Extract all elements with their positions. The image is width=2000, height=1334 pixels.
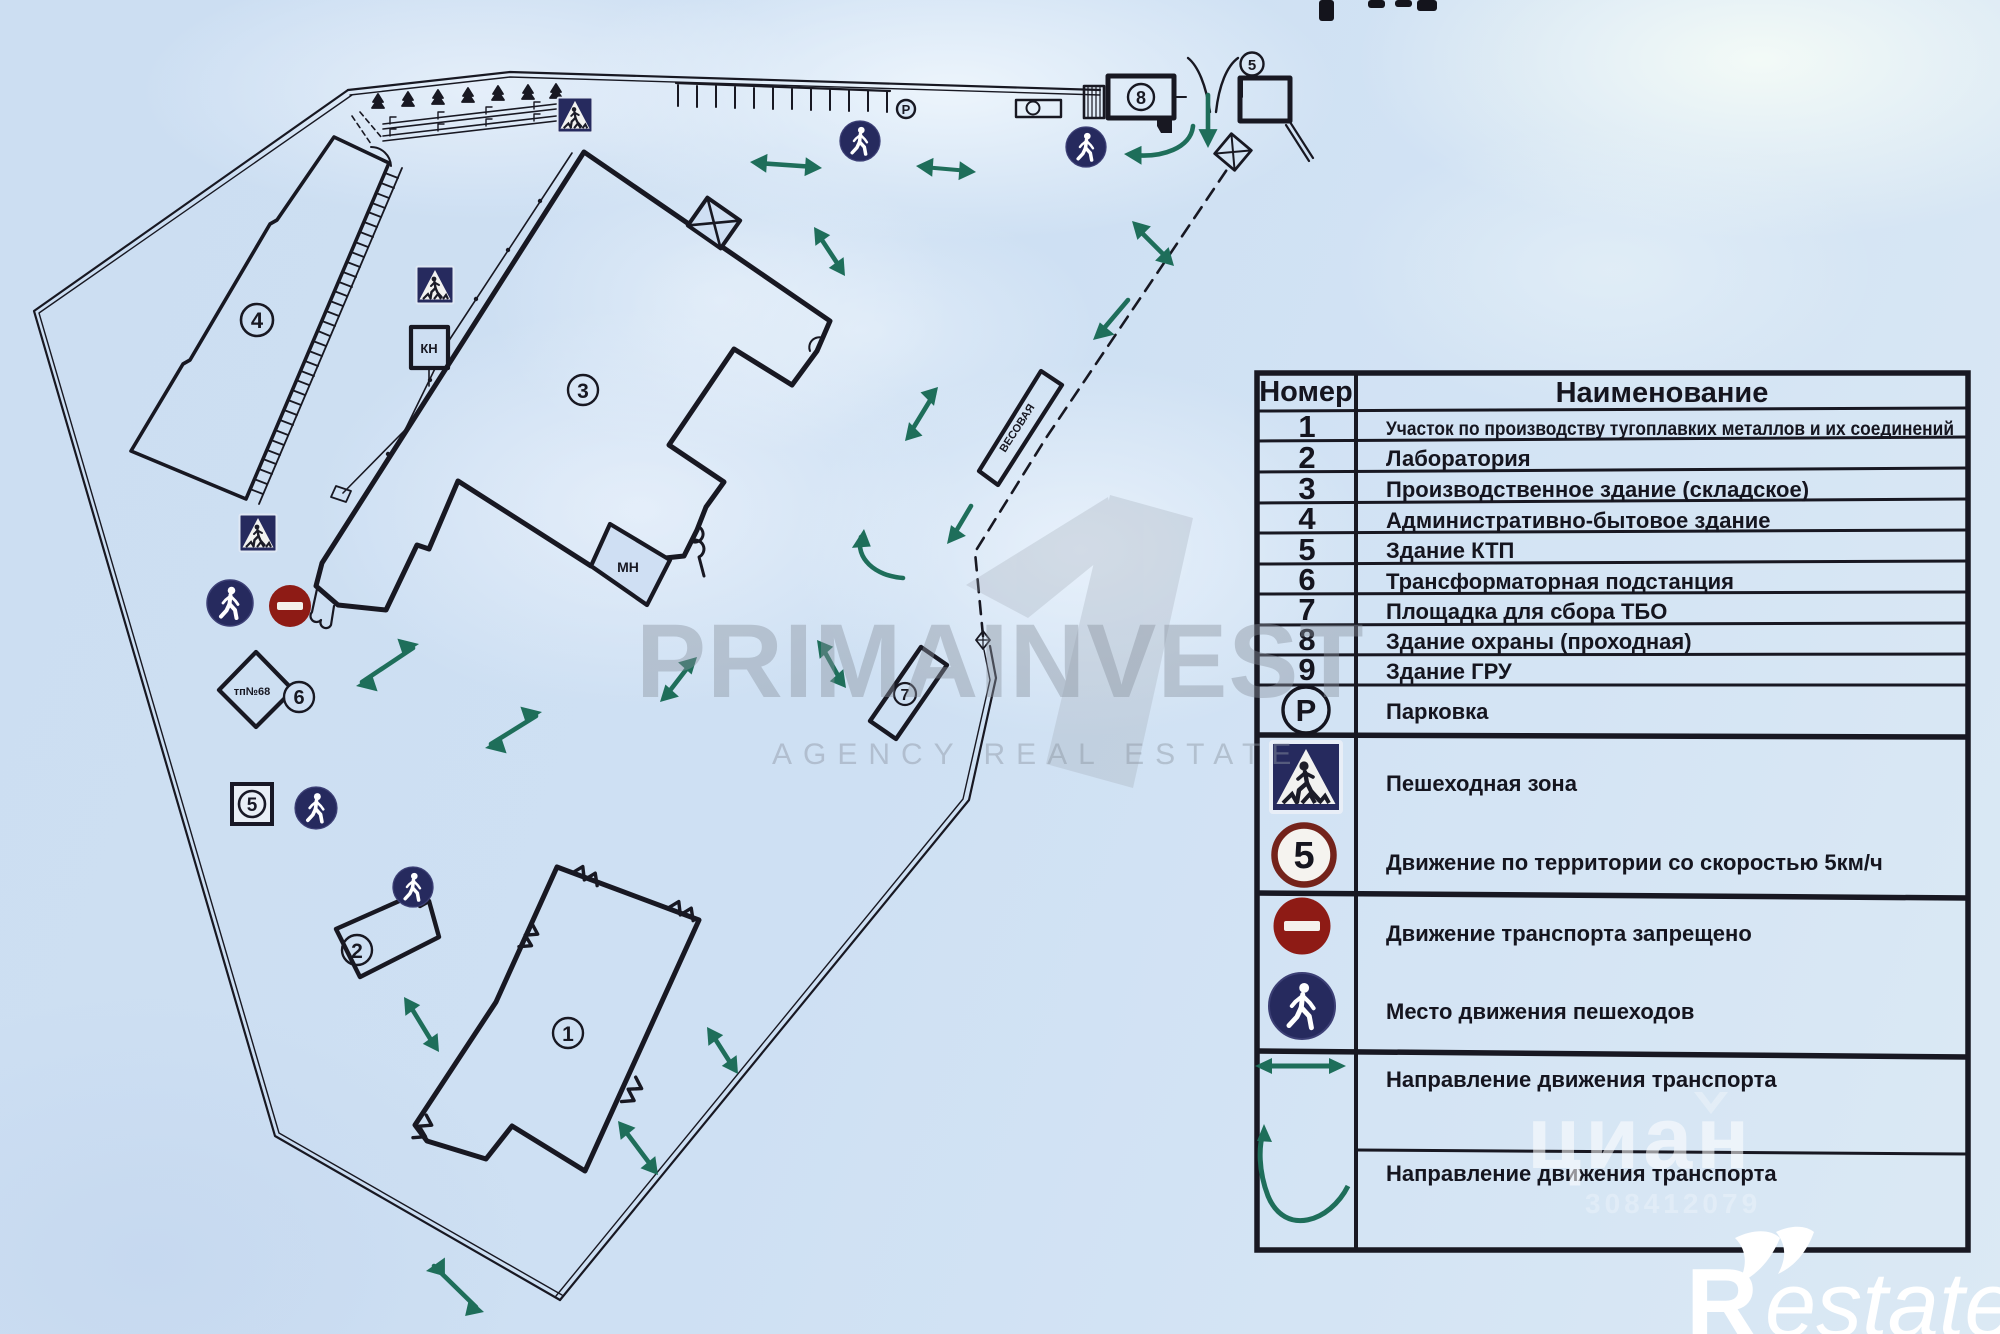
svg-text:Движение транспорта запрещено: Движение транспорта запрещено [1386, 921, 1752, 946]
svg-text:Р: Р [902, 102, 911, 117]
svg-text:5: 5 [1293, 835, 1314, 877]
svg-text:4: 4 [251, 308, 264, 333]
svg-text:тп№68: тп№68 [234, 686, 271, 698]
svg-text:5: 5 [247, 795, 258, 816]
svg-text:2: 2 [1298, 440, 1315, 475]
svg-text:Площадка для сбора ТБО: Площадка для сбора ТБО [1386, 599, 1667, 624]
svg-text:Номер: Номер [1259, 376, 1353, 408]
svg-text:КН: КН [420, 341, 437, 356]
svg-text:4: 4 [1298, 501, 1316, 536]
svg-text:Пешеходная зона: Пешеходная зона [1386, 771, 1578, 796]
svg-text:1: 1 [1298, 409, 1315, 444]
svg-text:R: R [1686, 1248, 1758, 1334]
svg-text:Административно-бытовое здание: Административно-бытовое здание [1386, 508, 1771, 533]
svg-text:Место движения пешеходов: Место движения пешеходов [1386, 999, 1694, 1024]
svg-text:PRIMAINVEST: PRIMAINVEST [636, 603, 1365, 720]
svg-text:6: 6 [293, 687, 304, 709]
svg-text:МН: МН [617, 559, 639, 575]
svg-text:Участок по производству тугопл: Участок по производству тугоплавких мета… [1386, 419, 1954, 440]
svg-text:Парковка: Парковка [1386, 699, 1489, 724]
svg-text:5: 5 [1248, 57, 1256, 74]
svg-text:Трансформаторная подстанция: Трансформаторная подстанция [1386, 569, 1734, 594]
svg-text:2: 2 [351, 940, 363, 963]
svg-text:Здание КТП: Здание КТП [1386, 538, 1514, 563]
svg-text:308412079: 308412079 [1585, 1188, 1761, 1219]
svg-text:Здание охраны (проходная): Здание охраны (проходная) [1386, 629, 1692, 654]
svg-text:estate: estate [1765, 1254, 2000, 1334]
svg-text:Движение по территории со скор: Движение по территории со скоростью 5км/… [1386, 850, 1883, 875]
svg-text:Наименование: Наименование [1556, 377, 1769, 409]
svg-text:3: 3 [577, 380, 589, 403]
svg-text:Производственное здание (склад: Производственное здание (складское) [1386, 477, 1809, 502]
svg-text:AGENCY REAL ESTATE: AGENCY REAL ESTATE [772, 738, 1302, 771]
svg-text:1: 1 [562, 1023, 574, 1046]
svg-text:8: 8 [1136, 88, 1146, 108]
svg-text:Лаборатория: Лаборатория [1386, 446, 1531, 471]
svg-text:Здание ГРУ: Здание ГРУ [1386, 659, 1512, 684]
